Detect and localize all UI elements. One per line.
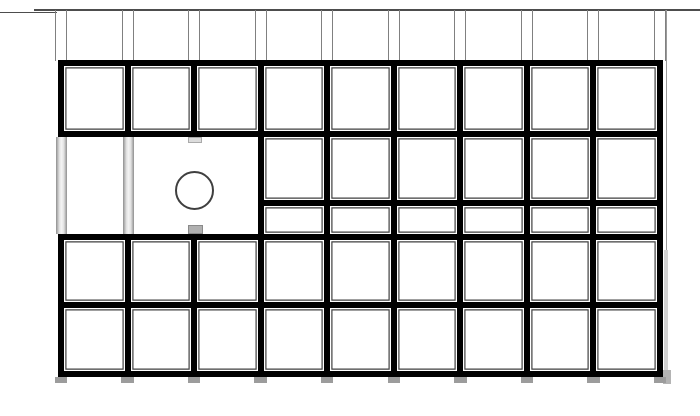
hanger-guide-line	[332, 10, 333, 61]
grid-cell-row2b	[463, 206, 524, 234]
hanger-guide-line	[55, 10, 56, 61]
hanger-guide-line	[133, 10, 134, 61]
hanger-guide-line	[598, 10, 599, 61]
hanger-guide-line	[587, 10, 588, 61]
foot-pad	[121, 377, 134, 383]
connector-tab-top	[188, 137, 202, 143]
grid-cell-row3	[264, 240, 325, 302]
grid-cell-row1	[463, 66, 524, 131]
top-datum-line	[34, 9, 700, 11]
cad-elevation-drawing	[0, 0, 700, 416]
grid-cell-row2b	[330, 206, 391, 234]
grid-cell-row2b	[596, 206, 657, 234]
foot-pad	[454, 377, 467, 383]
grid-cell-row4	[131, 308, 192, 371]
hanger-guide-line	[454, 10, 455, 61]
grid-cell-row4	[197, 308, 258, 371]
grid-cell-row3	[596, 240, 657, 302]
grid-cell-row3	[197, 240, 258, 302]
grid-cell-row2a	[397, 137, 458, 200]
grid-cell-row3	[463, 240, 524, 302]
hanger-guide-line	[654, 10, 655, 61]
grid-cell-row3	[530, 240, 591, 302]
grid-cell-row3	[64, 240, 125, 302]
hanger-guide-line	[399, 10, 400, 61]
hanger-guide-line	[199, 10, 200, 61]
grid-cell-row4	[64, 308, 125, 371]
grid-cell-row1	[596, 66, 657, 131]
grid-cell-row4	[463, 308, 524, 371]
hanger-guide-line	[122, 10, 123, 61]
connector-tab-bottom	[188, 225, 204, 234]
grid-cell-row2b	[264, 206, 325, 234]
hanger-guide-line	[266, 10, 267, 61]
grid-cell-row4	[264, 308, 325, 371]
grid-cell-row1	[397, 66, 458, 131]
grid-cell-row4	[530, 308, 591, 371]
foot-pad	[55, 377, 68, 383]
hanger-guide-line	[388, 10, 389, 61]
grid-cell-row1	[330, 66, 391, 131]
grid-cell-row1	[131, 66, 192, 131]
column-bar	[56, 137, 68, 234]
hanger-guide-line	[521, 10, 522, 61]
circle-marker	[175, 171, 214, 210]
hanger-guide-line	[66, 10, 67, 61]
grid-cell-row4	[397, 308, 458, 371]
grid-cell-row1	[197, 66, 258, 131]
foot-pad	[587, 377, 600, 383]
grid-cell-row2a	[596, 137, 657, 200]
grid-cell-row2a	[530, 137, 591, 200]
foot-pad	[388, 377, 401, 383]
grid-cell-row2b	[530, 206, 591, 234]
foot-pad	[254, 377, 267, 383]
hanger-guide-line	[255, 10, 256, 61]
hanger-guide-line	[465, 10, 466, 61]
hanger-guide-line	[532, 10, 533, 61]
grid-cell-row4	[330, 308, 391, 371]
grid-cell-row1	[264, 66, 325, 131]
column-bar	[123, 137, 135, 234]
grid-cell-row2a	[264, 137, 325, 200]
grid-cell-row4	[596, 308, 657, 371]
grid-cell-row2b	[397, 206, 458, 234]
grid-cell-row2a	[330, 137, 391, 200]
foot-pad	[321, 377, 334, 383]
grid-cell-row3	[397, 240, 458, 302]
edge-shadow	[664, 250, 668, 377]
grid-cell-row2a	[463, 137, 524, 200]
top-datum-line	[0, 12, 57, 13]
hanger-guide-line	[188, 10, 189, 61]
foot-pad	[188, 377, 201, 383]
grid-cell-row1	[64, 66, 125, 131]
grid-cell-row3	[131, 240, 192, 302]
grid-cell-row3	[330, 240, 391, 302]
foot-pad	[654, 377, 667, 383]
grid-cell-row1	[530, 66, 591, 131]
foot-pad	[521, 377, 534, 383]
hanger-guide-line	[321, 10, 322, 61]
